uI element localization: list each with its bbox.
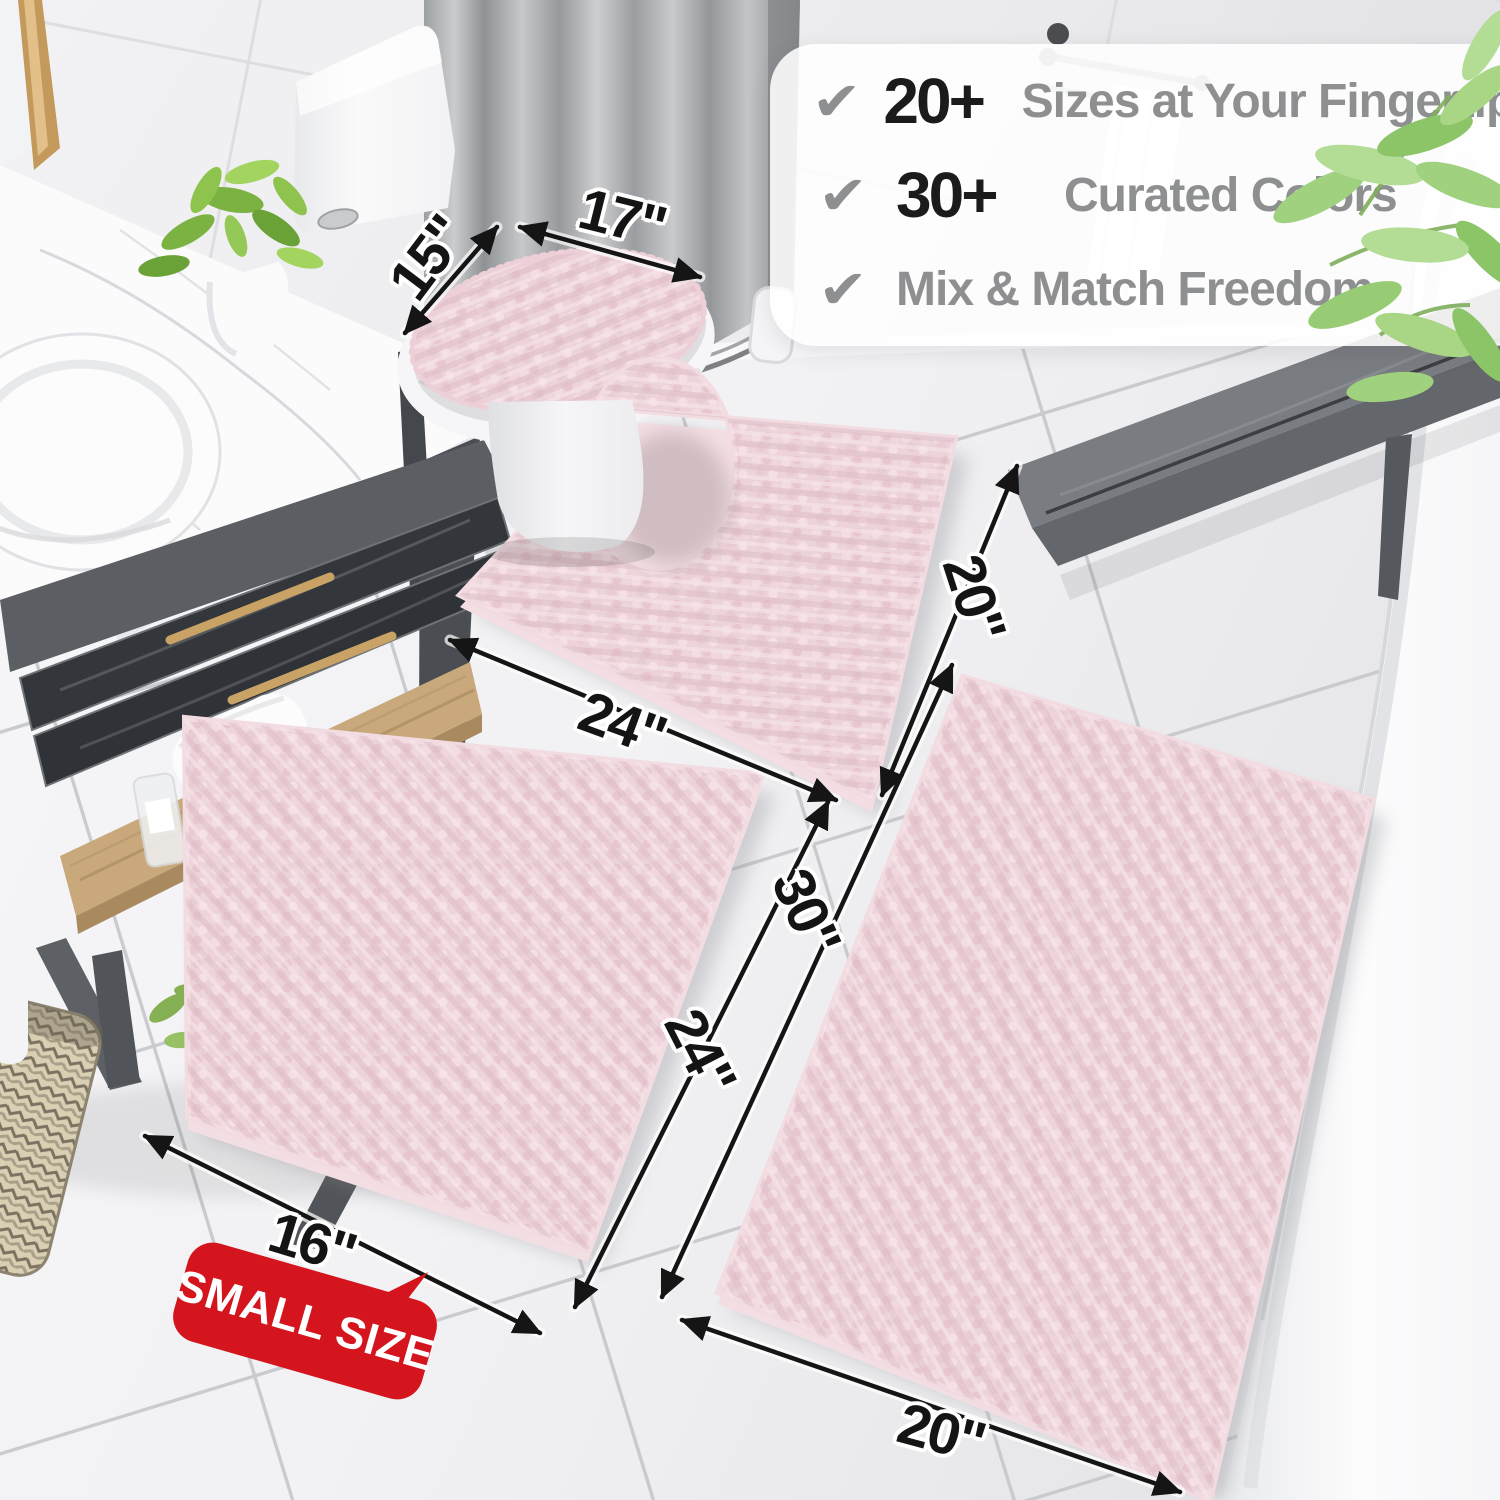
- feature-label: Curated Colors: [1064, 168, 1397, 223]
- feature-row-colors: ✔ 30+ Curated Colors: [812, 151, 1500, 239]
- feature-label: Sizes at Your Fingertips: [1022, 74, 1500, 129]
- feature-count: 30+: [896, 158, 1042, 232]
- feature-row-mix-match: ✔ Mix & Match Freedom: [812, 245, 1500, 333]
- feature-row-sizes: ✔ 20+ Sizes at Your Fingertips: [812, 57, 1500, 145]
- feature-count: 20+: [883, 64, 999, 138]
- check-icon: ✔: [809, 258, 877, 321]
- check-icon: ✔: [809, 164, 877, 227]
- feature-callout-box: ✔ 20+ Sizes at Your Fingertips ✔ 30+ Cur…: [770, 44, 1500, 346]
- feature-label: Mix & Match Freedom: [896, 262, 1373, 317]
- toilet-pedestal: [485, 400, 655, 567]
- check-icon: ✔: [810, 70, 864, 133]
- towel-sliver: [0, 952, 28, 1064]
